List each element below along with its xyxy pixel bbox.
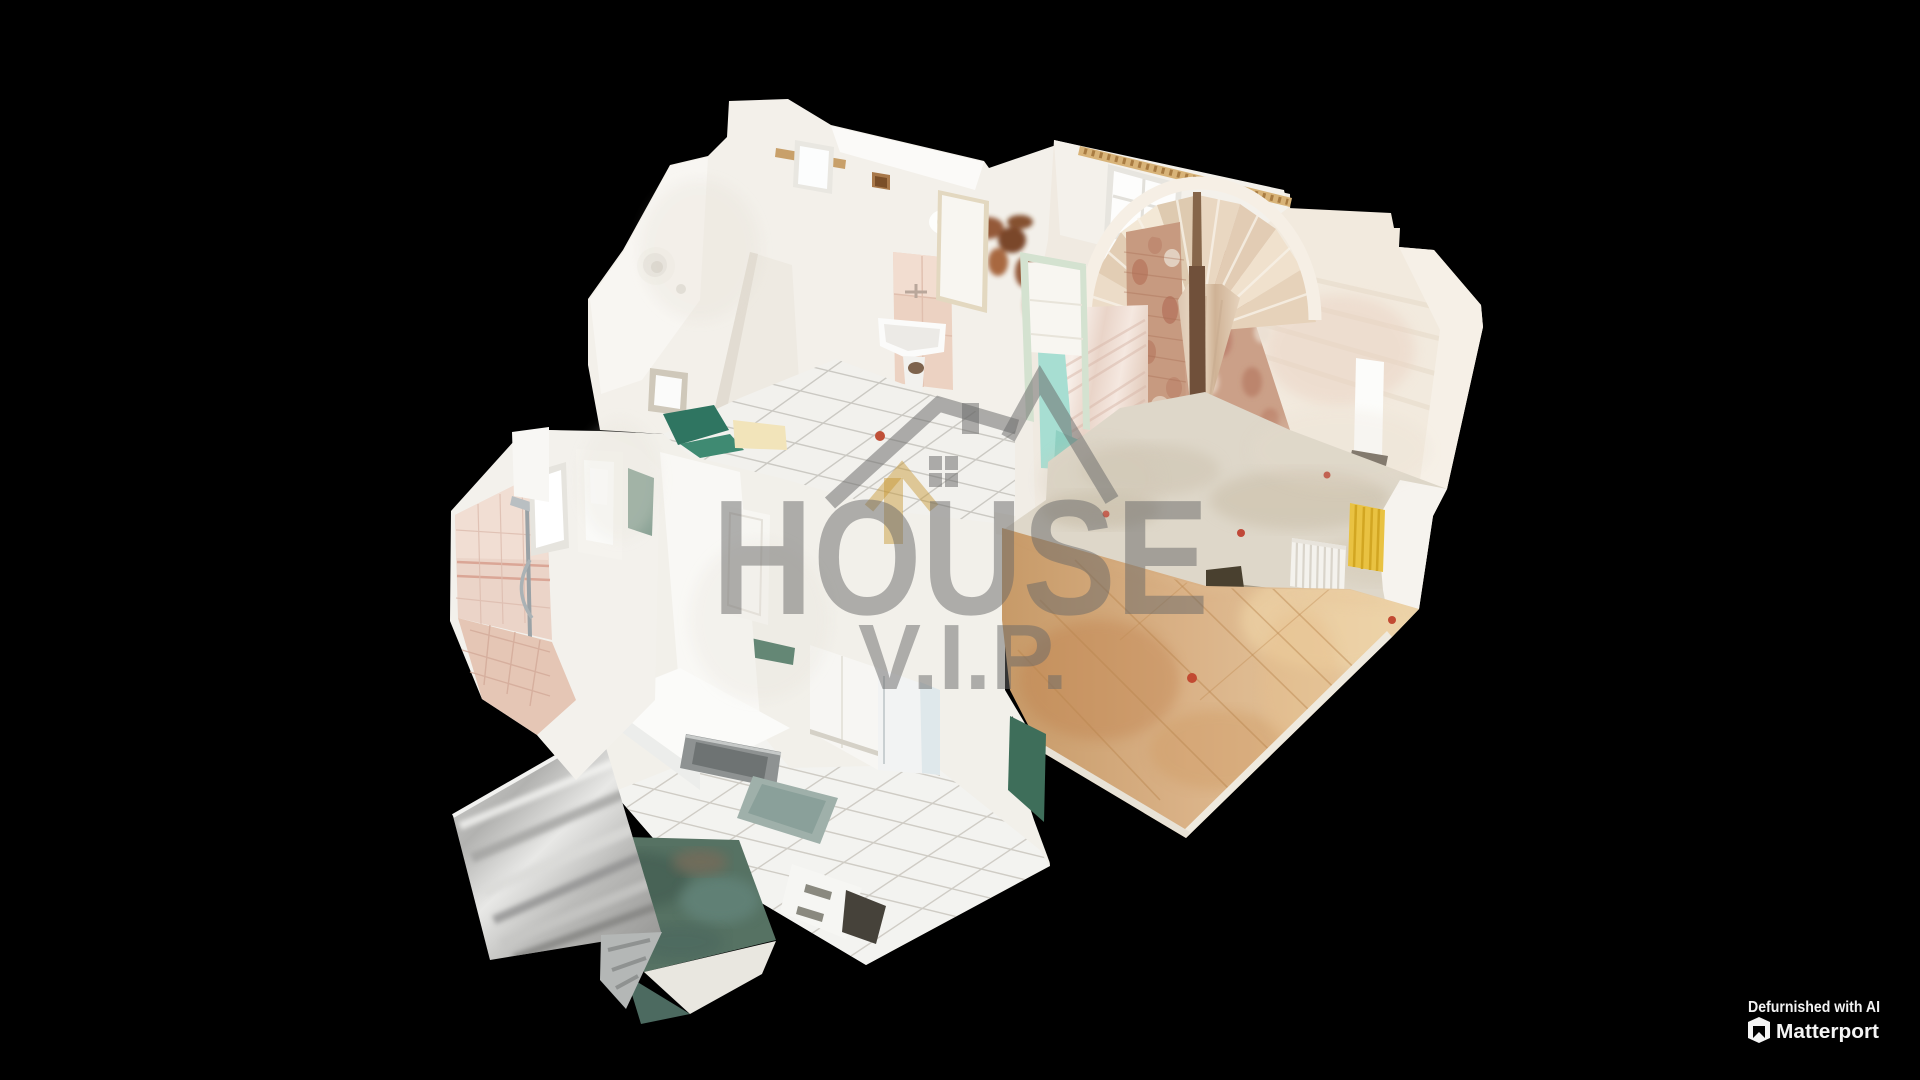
svg-text:Matterport: Matterport xyxy=(1776,1021,1879,1043)
svg-text:V.I.P.: V.I.P. xyxy=(858,605,1068,709)
svg-text:Defurnished with AI: Defurnished with AI xyxy=(1748,999,1880,1016)
